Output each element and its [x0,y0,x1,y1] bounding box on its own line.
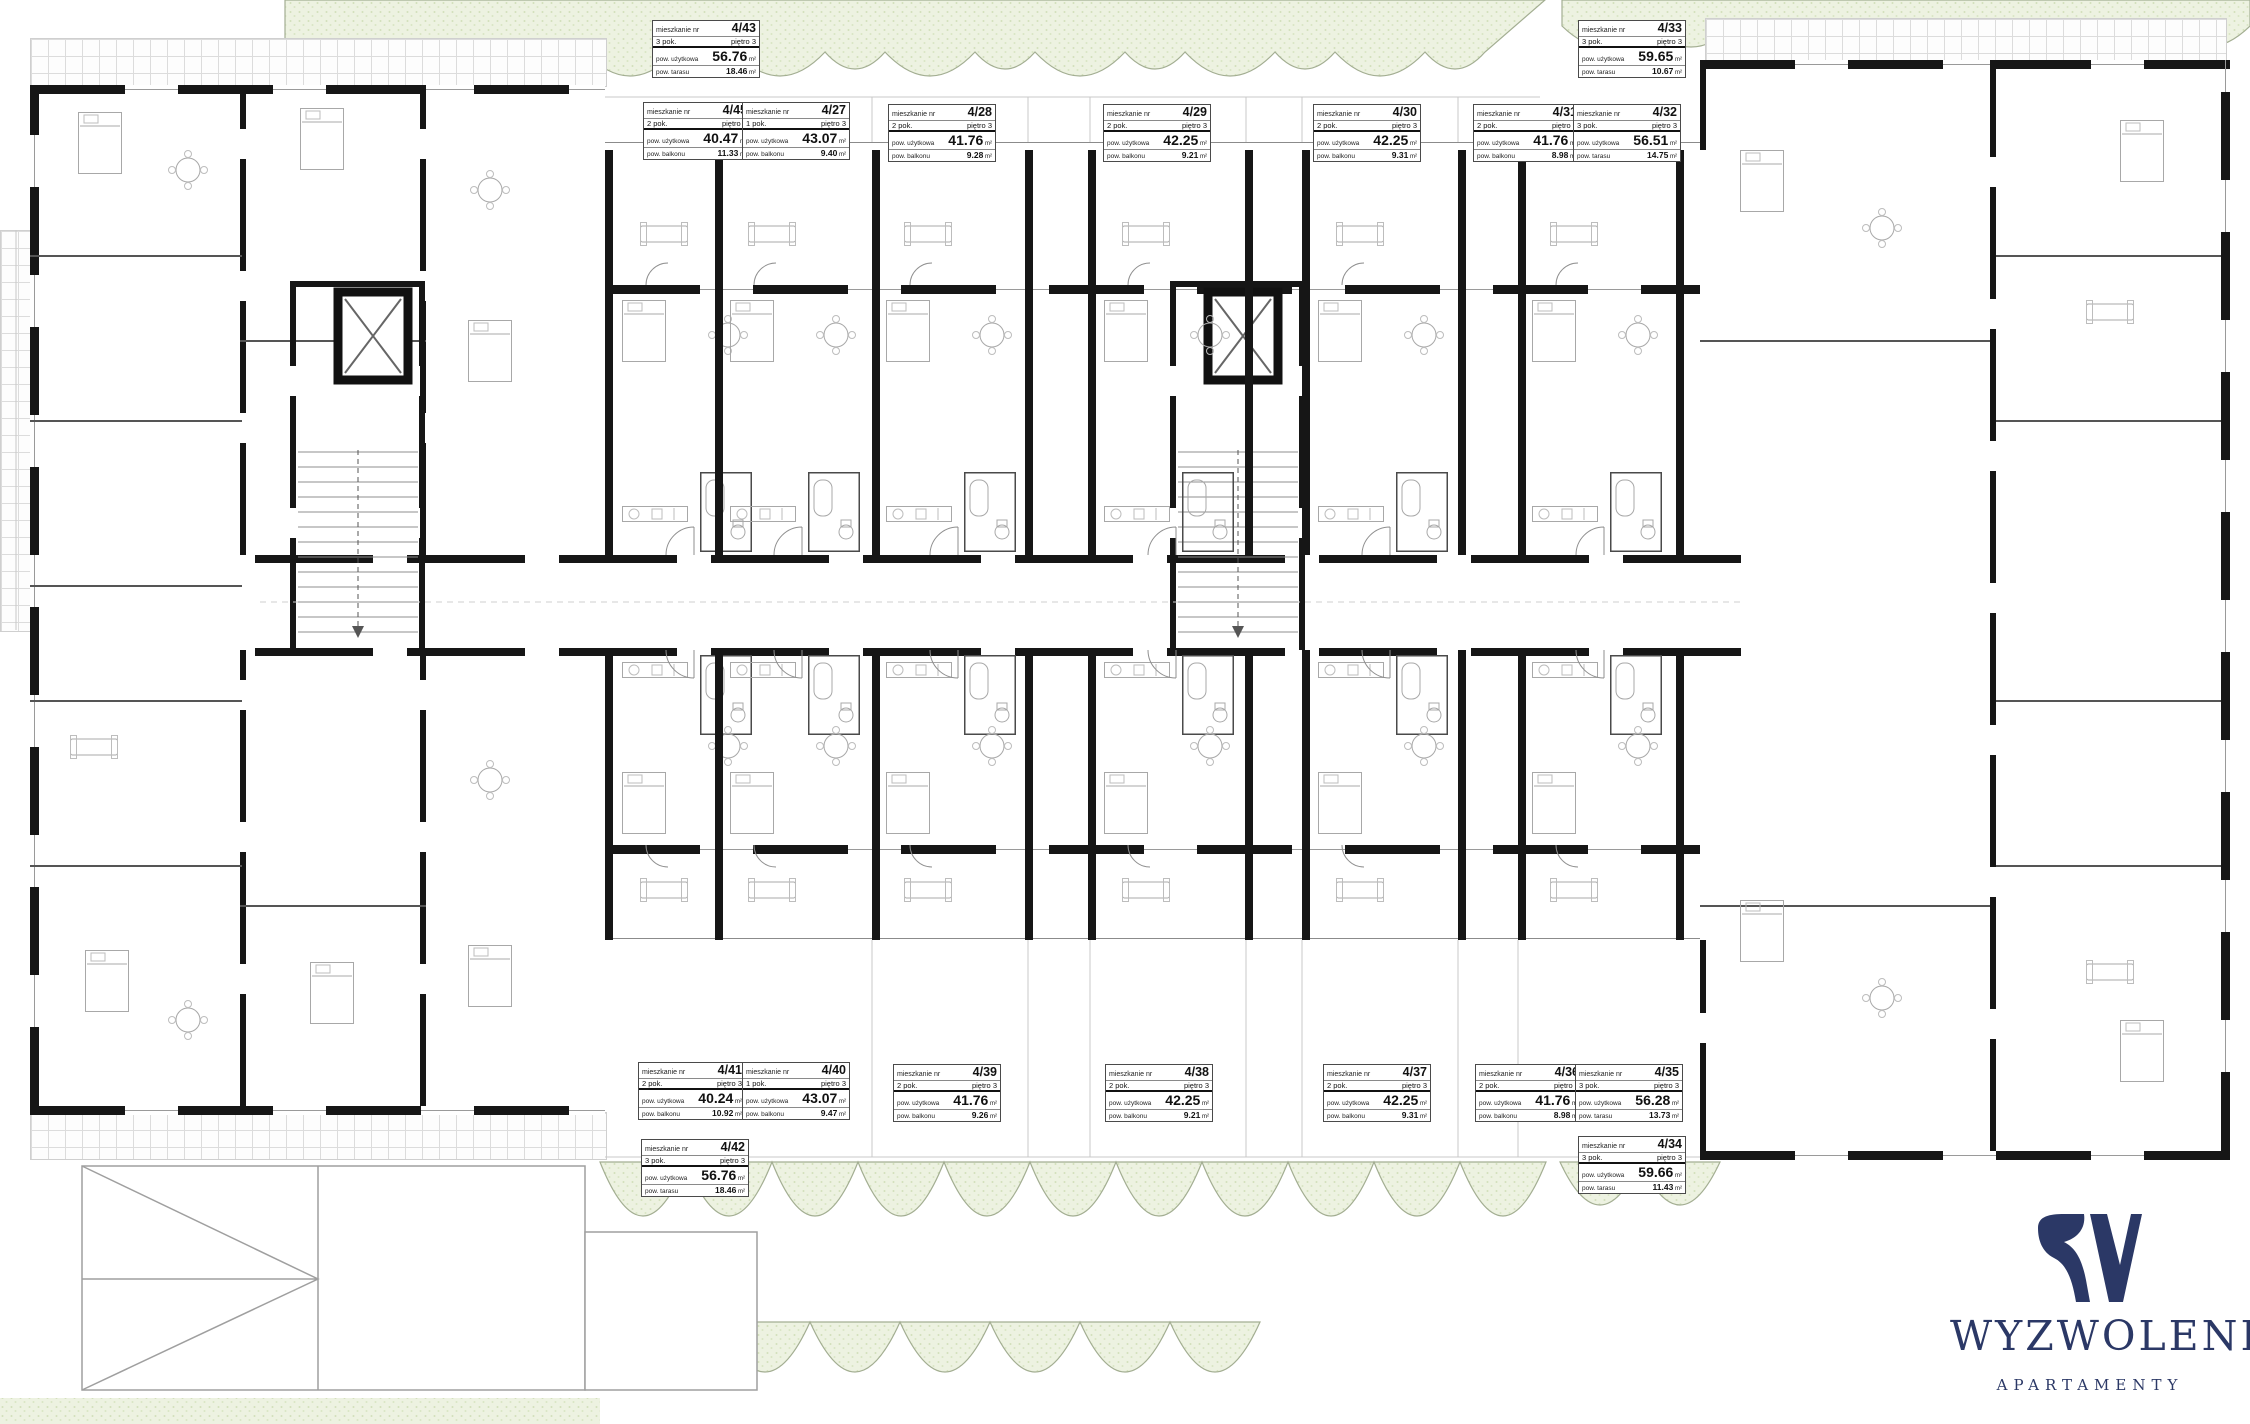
area-label: pow. użytkowa [645,1176,687,1183]
unit-area: 42.25 m² [1383,1093,1427,1107]
unit-rooms: 1 pok. [746,1080,766,1088]
apartment-furniture [623,223,1662,902]
unit-rooms: 2 pok. [642,1080,662,1088]
tag-prefix: mieszkanie nr [1577,111,1620,118]
area-label: pow. użytkowa [1317,141,1359,148]
unit-outdoor: 10.67 m² [1652,67,1682,76]
area-label: pow. użytkowa [897,1101,939,1108]
brand-name: WYZWOLENIA [1950,1312,2230,1360]
outdoor-label: pow. balkonu [1317,154,1355,161]
area-label: pow. użytkowa [656,57,698,64]
tag-prefix: mieszkanie nr [1317,111,1360,118]
unit-number: 4/33 [1658,22,1682,35]
unit-outdoor: 10.92 m² [712,1109,742,1118]
wing-furniture [71,109,2164,1082]
unit-floor: piętro 3 [1184,1082,1209,1090]
unit-floor: piętro 3 [1402,1082,1427,1090]
apartment-tag-4-27: mieszkanie nr4/27 1 pok.piętro 3 pow. uż… [742,102,850,160]
unit-outdoor: 9.21 m² [1184,1111,1209,1120]
apartment-tag-4-37: mieszkanie nr4/37 2 pok.piętro 3 pow. uż… [1323,1064,1431,1122]
unit-area: 56.28 m² [1635,1093,1679,1107]
unit-number: 4/38 [1185,1066,1209,1079]
apartment-tag-4-39: mieszkanie nr4/39 2 pok.piętro 3 pow. uż… [893,1064,1001,1122]
unit-rooms: 3 pok. [1582,38,1602,46]
tag-prefix: mieszkanie nr [1582,1143,1625,1150]
apartment-tag-4-35: mieszkanie nr4/35 3 pok.piętro 3 pow. uż… [1575,1064,1683,1122]
unit-area: 41.76 m² [1533,133,1577,147]
tag-prefix: mieszkanie nr [1477,111,1520,118]
area-label: pow. użytkowa [1107,141,1149,148]
tag-prefix: mieszkanie nr [647,109,690,116]
outdoor-label: pow. tarasu [656,70,689,77]
unit-divider-wall [872,650,880,940]
unit-area: 43.07 m² [802,1091,846,1105]
unit-divider-wall [715,650,723,940]
unit-number: 4/40 [822,1064,846,1077]
unit-rooms: 3 pok. [1577,122,1597,130]
unit-floor: piętro 3 [717,1080,742,1088]
area-label: pow. użytkowa [642,1099,684,1106]
unit-divider-wall [1025,650,1033,940]
tag-prefix: mieszkanie nr [645,1146,688,1153]
apartment-tag-4-40: mieszkanie nr4/40 1 pok.piętro 3 pow. uż… [742,1062,850,1120]
unit-area: 43.07 m² [802,131,846,145]
brand-logo: WYZWOLENIA APARTAMENTY [1950,1208,2230,1394]
unit-area: 42.25 m² [1165,1093,1209,1107]
unit-rooms: 3 pok. [645,1157,665,1165]
unit-number: 4/32 [1653,106,1677,119]
apartment-tag-4-33: mieszkanie nr4/33 3 pok.piętro 3 pow. uż… [1578,20,1686,78]
unit-divider-wall [1676,650,1684,940]
unit-outdoor: 11.43 m² [1653,1183,1682,1192]
tag-prefix: mieszkanie nr [1479,1071,1522,1078]
tag-prefix: mieszkanie nr [656,27,699,34]
apartment-tag-4-36: mieszkanie nr4/36 2 pok.piętro 3 pow. uż… [1475,1064,1583,1122]
unit-rooms: 2 pok. [1109,1082,1129,1090]
unit-number: 4/42 [721,1141,745,1154]
unit-area: 41.76 m² [953,1093,997,1107]
unit-divider-wall [1245,150,1253,555]
unit-area: 59.66 m² [1638,1165,1682,1179]
unit-divider-wall [605,650,613,940]
unit-number: 4/43 [732,22,756,35]
unit-floor: piętro 3 [821,1080,846,1088]
unit-divider-wall [1088,650,1096,940]
unit-floor: piętro 3 [967,122,992,130]
outdoor-label: pow. balkonu [1477,154,1515,161]
unit-floor: piętro 3 [1657,38,1682,46]
outdoor-label: pow. balkonu [897,1114,935,1121]
tag-prefix: mieszkanie nr [1327,1071,1370,1078]
unit-floor: piętro 3 [1182,122,1207,130]
apartment-tag-4-43: mieszkanie nr4/43 3 pok.piętro 3 pow. uż… [652,20,760,78]
unit-rooms: 2 pok. [647,120,667,128]
outdoor-label: pow. tarasu [1582,1186,1615,1193]
outdoor-label: pow. balkonu [1327,1114,1365,1121]
outdoor-label: pow. tarasu [645,1189,678,1196]
unit-floor: piętro 3 [1657,1154,1682,1162]
unit-rooms: 2 pok. [892,122,912,130]
area-label: pow. użytkowa [746,139,788,146]
unit-divider-wall [1245,650,1253,940]
outdoor-label: pow. tarasu [1577,154,1610,161]
apartment-tag-4-34: mieszkanie nr4/34 3 pok.piętro 3 pow. uż… [1578,1136,1686,1194]
outdoor-label: pow. balkonu [1109,1114,1147,1121]
apartment-tag-4-32: mieszkanie nr4/32 3 pok.piętro 3 pow. uż… [1573,104,1681,162]
unit-number: 4/37 [1403,1066,1427,1079]
unit-outdoor: 9.31 m² [1402,1111,1427,1120]
outdoor-label: pow. balkonu [1479,1114,1517,1121]
unit-divider-wall [715,150,723,555]
floor-plan: WYZWOLENIA APARTAMENTY mieszkanie nr4/43… [0,0,2250,1424]
unit-rooms: 2 pok. [1317,122,1337,130]
unit-floor: piętro 3 [720,1157,745,1165]
staircase [1178,450,1298,638]
apartment-tag-4-30: mieszkanie nr4/30 2 pok.piętro 3 pow. uż… [1313,104,1421,162]
unit-number: 4/34 [1658,1138,1682,1151]
tag-prefix: mieszkanie nr [1107,111,1150,118]
outdoor-label: pow. balkonu [746,1112,784,1119]
unit-outdoor: 9.28 m² [967,151,992,160]
unit-number: 4/35 [1655,1066,1679,1079]
unit-outdoor: 9.26 m² [972,1111,997,1120]
outdoor-label: pow. balkonu [892,154,930,161]
elevator [338,292,408,380]
unit-number: 4/39 [973,1066,997,1079]
area-label: pow. użytkowa [647,139,689,146]
apartment-tag-4-45: mieszkanie nr4/45 2 pok.piętro 3 pow. uż… [643,102,751,160]
unit-rooms: 3 pok. [1579,1082,1599,1090]
area-label: pow. użytkowa [1577,141,1619,148]
unit-divider-wall [1518,150,1526,555]
unit-outdoor: 9.40 m² [821,149,846,158]
apartment-tag-4-28: mieszkanie nr4/28 2 pok.piętro 3 pow. uż… [888,104,996,162]
unit-area: 59.65 m² [1638,49,1682,63]
unit-divider-wall [1458,650,1466,940]
tag-prefix: mieszkanie nr [897,1071,940,1078]
unit-outdoor: 9.47 m² [821,1109,846,1118]
area-label: pow. użytkowa [1479,1101,1521,1108]
unit-outdoor: 9.21 m² [1182,151,1207,160]
unit-outdoor: 13.73 m² [1649,1111,1679,1120]
unit-outdoor: 18.46 m² [726,67,756,76]
staircase [298,450,418,638]
outdoor-label: pow. balkonu [746,152,784,159]
unit-rooms: 2 pok. [1327,1082,1347,1090]
unit-area: 41.76 m² [1535,1093,1579,1107]
unit-divider-wall [1025,150,1033,555]
area-label: pow. użytkowa [1477,141,1519,148]
unit-number: 4/41 [718,1064,742,1077]
area-label: pow. użytkowa [746,1099,788,1106]
unit-rooms: 2 pok. [1479,1082,1499,1090]
unit-area: 40.24 m² [698,1091,742,1105]
unit-floor: piętro 3 [1654,1082,1679,1090]
unit-area: 56.76 m² [712,49,756,63]
unit-divider-wall [1088,150,1096,555]
area-label: pow. użytkowa [1582,1173,1624,1180]
outdoor-label: pow. tarasu [1579,1114,1612,1121]
plot-lines [16,97,1700,1157]
unit-outdoor: 18.46 m² [715,1186,745,1195]
tag-prefix: mieszkanie nr [642,1069,685,1076]
area-label: pow. użytkowa [1327,1101,1369,1108]
unit-area: 42.25 m² [1163,133,1207,147]
tag-prefix: mieszkanie nr [746,109,789,116]
apartment-tag-4-41: mieszkanie nr4/41 2 pok.piętro 3 pow. uż… [638,1062,746,1120]
tag-prefix: mieszkanie nr [1109,1071,1152,1078]
tag-prefix: mieszkanie nr [892,111,935,118]
unit-divider-wall [1458,150,1466,555]
unit-area: 41.76 m² [948,133,992,147]
unit-number: 4/30 [1393,106,1417,119]
unit-area: 56.76 m² [701,1168,745,1182]
unit-number: 4/28 [968,106,992,119]
unit-floor: piętro 3 [1392,122,1417,130]
brand-monogram-icon [2030,1208,2150,1308]
apartment-tag-4-38: mieszkanie nr4/38 2 pok.piętro 3 pow. uż… [1105,1064,1213,1122]
unit-area: 56.51 m² [1633,133,1677,147]
unit-rooms: 2 pok. [897,1082,917,1090]
unit-rooms: 1 pok. [746,120,766,128]
area-label: pow. użytkowa [1109,1101,1151,1108]
apartment-tag-4-42: mieszkanie nr4/42 3 pok.piętro 3 pow. uż… [641,1139,749,1197]
apartment-tag-4-31: mieszkanie nr4/31 2 pok.piętro 3 pow. uż… [1473,104,1581,162]
detail-layer [0,0,2250,1424]
unit-area: 40.47 m² [703,131,747,145]
area-label: pow. użytkowa [1582,57,1624,64]
brand-tagline: APARTAMENTY [1950,1376,2230,1394]
unit-divider-wall [1518,650,1526,940]
unit-rooms: 2 pok. [1477,122,1497,130]
unit-divider-wall [1676,150,1684,555]
outdoor-label: pow. balkonu [642,1112,680,1119]
tag-prefix: mieszkanie nr [746,1069,789,1076]
outdoor-label: pow. balkonu [1107,154,1145,161]
apartment-tag-4-29: mieszkanie nr4/29 2 pok.piętro 3 pow. uż… [1103,104,1211,162]
tag-prefix: mieszkanie nr [1582,27,1625,34]
unit-area: 42.25 m² [1373,133,1417,147]
area-label: pow. użytkowa [1579,1101,1621,1108]
unit-floor: piętro 3 [1652,122,1677,130]
elevator [1208,292,1278,380]
unit-rooms: 2 pok. [1107,122,1127,130]
unit-outdoor: 14.75 m² [1647,151,1677,160]
unit-floor: piętro 3 [972,1082,997,1090]
tag-prefix: mieszkanie nr [1579,1071,1622,1078]
unit-outdoor: 9.31 m² [1392,151,1417,160]
unit-divider-wall [1302,650,1310,940]
unit-number: 4/27 [822,104,846,117]
unit-floor: piętro 3 [731,38,756,46]
outdoor-label: pow. tarasu [1582,70,1615,77]
unit-rooms: 3 pok. [656,38,676,46]
unit-floor: piętro 3 [821,120,846,128]
outdoor-label: pow. balkonu [647,152,685,159]
unit-divider-wall [1302,150,1310,555]
unit-divider-wall [605,150,613,555]
unit-divider-wall [872,150,880,555]
area-label: pow. użytkowa [892,141,934,148]
unit-number: 4/29 [1183,106,1207,119]
unit-rooms: 3 pok. [1582,1154,1602,1162]
